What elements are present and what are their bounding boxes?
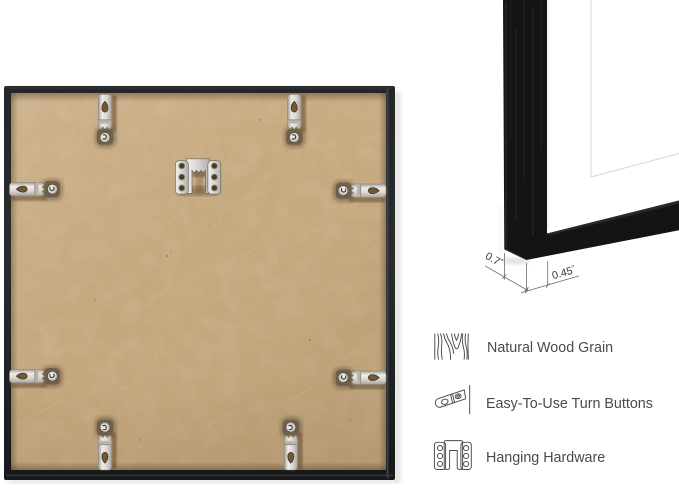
svg-text:Easy-To-Use Turn Buttons: Easy-To-Use Turn Buttons <box>486 396 653 412</box>
svg-text:Natural Wood Grain: Natural Wood Grain <box>487 340 613 356</box>
svg-text:Hanging Hardware: Hanging Hardware <box>486 450 605 466</box>
